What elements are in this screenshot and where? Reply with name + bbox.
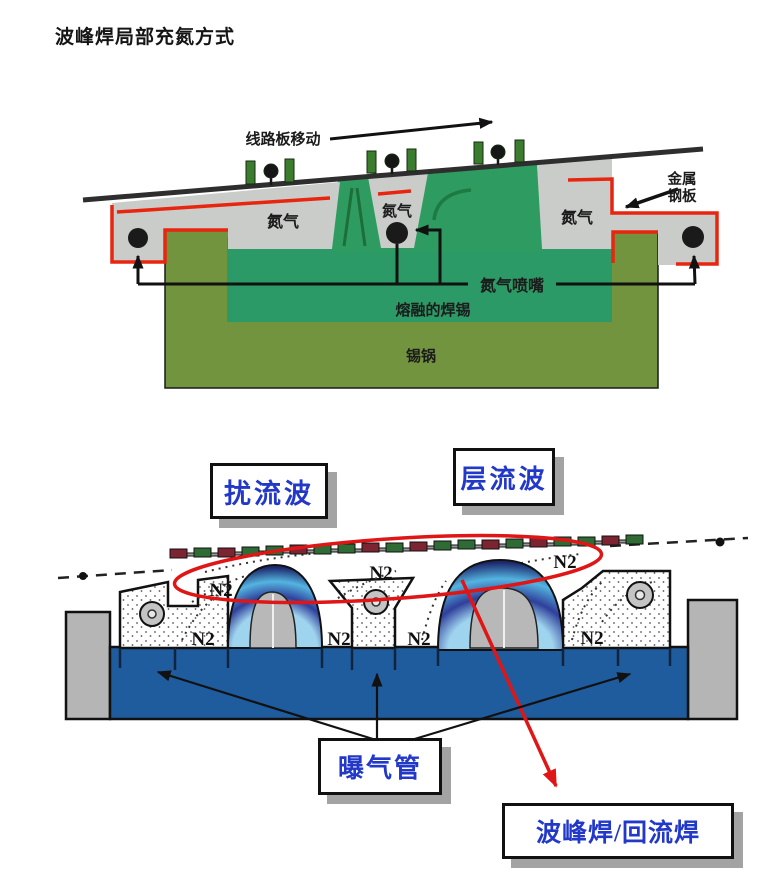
- aeration-pipe-label: 曝气管: [338, 748, 422, 785]
- board-move-label: 线路板移动: [245, 130, 320, 148]
- n2-label-3: N2: [553, 552, 576, 573]
- turbulent-wave-labelbox: 扰流波: [210, 463, 328, 519]
- page: 波峰焊局部充氮方式: [0, 0, 761, 872]
- n2-label-7: N2: [580, 628, 603, 649]
- n2-label-4: N2: [191, 629, 214, 650]
- solder-pot-label: 锡锅: [406, 347, 436, 365]
- nitrogen-nozzle-right: [682, 226, 704, 248]
- dashed-line-dot-left: [79, 572, 87, 580]
- nitrogen-label-center: 氮气: [382, 202, 412, 220]
- laminar-wave-labelbox: 层流波: [453, 448, 555, 506]
- laminar-wave-label: 层流波: [460, 459, 547, 496]
- metal-plate-label-2: 钢板: [668, 187, 697, 205]
- nitrogen-label-left: 氮气: [267, 212, 299, 231]
- aeration-pipe-labelbox: 曝气管: [318, 738, 442, 795]
- nitrogen-nozzle-left: [128, 228, 148, 248]
- top-diagram: 线路板移动 氮气 氮气 氮气 金属 钢板 氮气喷嘴 熔融的焊锡 锡锅: [83, 122, 717, 388]
- metal-plate-label-1: 金属: [667, 170, 697, 188]
- right-post: [688, 600, 737, 719]
- board-move-arrow-icon: [330, 122, 492, 139]
- wave-reflow-label: 波峰焊/回流焊: [536, 813, 700, 849]
- n2-label-6: N2: [407, 629, 430, 650]
- nitrogen-nozzle-center: [386, 222, 408, 244]
- n2-label-1: N2: [209, 580, 232, 601]
- turbulent-wave-label: 扰流波: [224, 472, 314, 511]
- dashed-line-dot-right: [716, 538, 725, 547]
- n2-label-5: N2: [327, 629, 350, 650]
- left-post: [66, 612, 110, 719]
- wave-reflow-labelbox: 波峰焊/回流焊: [502, 803, 734, 859]
- molten-solder-label: 熔融的焊锡: [395, 301, 470, 319]
- nitrogen-label-right: 氮气: [561, 208, 593, 227]
- n2-label-2: N2: [369, 563, 392, 584]
- nozzle-label: 氮气喷嘴: [480, 276, 544, 295]
